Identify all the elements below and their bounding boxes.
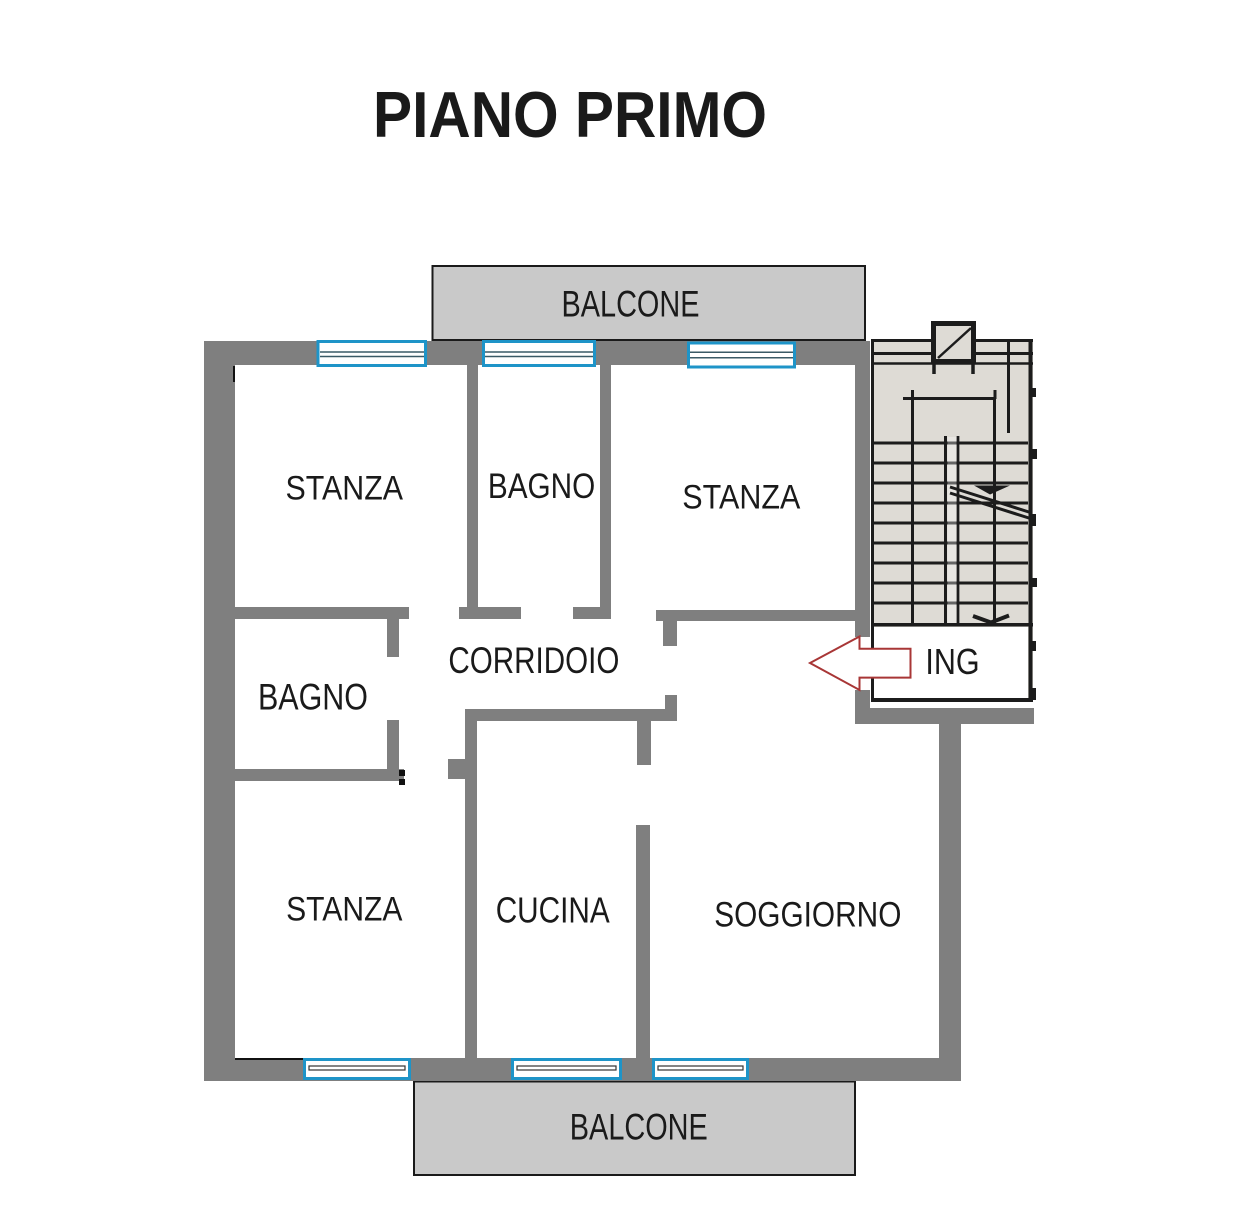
svg-text:PIANO PRIMO: PIANO PRIMO [373, 79, 767, 151]
svg-text:CUCINA: CUCINA [496, 889, 611, 930]
svg-text:BALCONE: BALCONE [562, 282, 700, 324]
svg-text:STANZA: STANZA [682, 479, 800, 517]
svg-text:SOGGIORNO: SOGGIORNO [714, 895, 901, 934]
svg-text:CORRIDOIO: CORRIDOIO [448, 640, 619, 681]
svg-text:BAGNO: BAGNO [488, 467, 595, 506]
svg-text:BAGNO: BAGNO [258, 676, 368, 717]
svg-text:STANZA: STANZA [286, 891, 403, 929]
svg-text:STANZA: STANZA [286, 470, 404, 508]
svg-text:BALCONE: BALCONE [570, 1106, 708, 1147]
svg-text:ING: ING [925, 642, 979, 682]
